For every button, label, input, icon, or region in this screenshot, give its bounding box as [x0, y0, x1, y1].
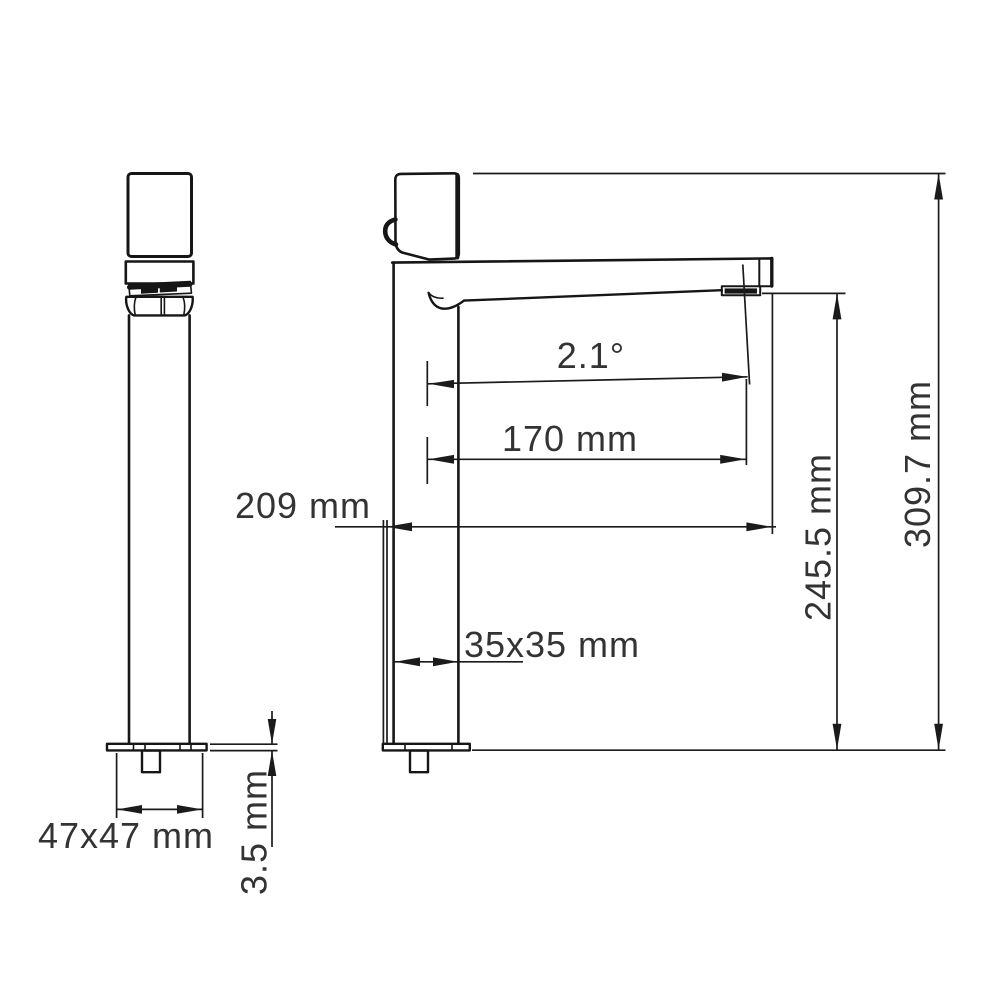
label-base-section: 47x47 mm	[38, 815, 214, 856]
dimension-labels: 209 mm 170 mm 2.1° 35x35 mm 47x47 mm 3.5…	[38, 335, 938, 895]
front-handle	[128, 174, 192, 257]
side-spout-bottom	[464, 290, 722, 300]
side-spout-tip	[759, 258, 772, 286]
side-tailpiece	[410, 751, 428, 773]
label-spout-reach: 170 mm	[502, 418, 638, 459]
front-tailpiece	[142, 751, 160, 773]
label-spout-angle: 2.1°	[557, 335, 625, 376]
front-spout-band	[129, 282, 192, 296]
label-spout-height: 245.5 mm	[798, 453, 839, 621]
front-collar	[126, 262, 194, 284]
side-view	[383, 173, 772, 772]
faucet-technical-drawing: 209 mm 170 mm 2.1° 35x35 mm 47x47 mm 3.5…	[0, 0, 1000, 1000]
front-view	[107, 174, 207, 773]
label-body-section: 35x35 mm	[464, 624, 640, 665]
label-total-reach: 209 mm	[235, 485, 371, 526]
front-spout-crown	[126, 297, 193, 316]
side-aerator	[722, 286, 760, 295]
dim-total-reach	[335, 294, 776, 744]
label-base-thickness: 3.5 mm	[234, 769, 275, 895]
label-total-height: 309.7 mm	[897, 380, 938, 548]
side-handle	[385, 173, 459, 259]
